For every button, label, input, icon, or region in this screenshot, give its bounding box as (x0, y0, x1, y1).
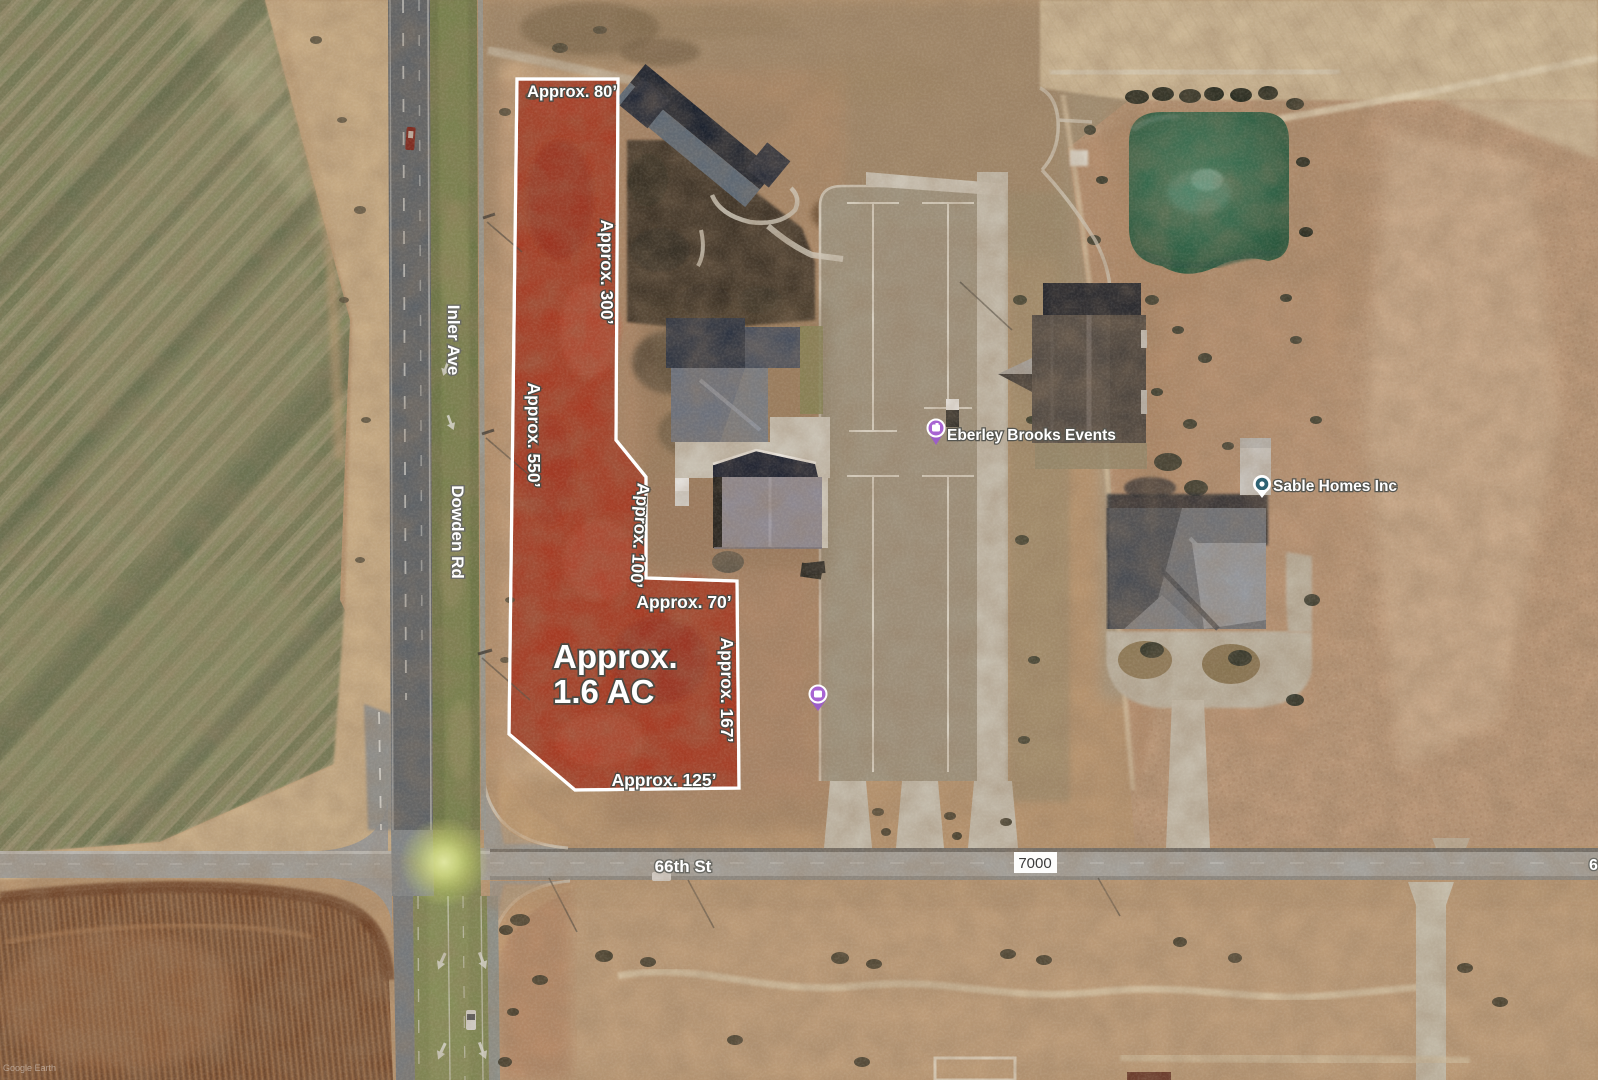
svg-text:Inler Ave: Inler Ave (444, 305, 463, 376)
svg-text:Approx. 125’: Approx. 125’ (611, 770, 716, 790)
svg-text:66th St: 66th St (655, 857, 712, 876)
svg-text:Sable Homes Inc: Sable Homes Inc (1273, 478, 1397, 495)
svg-text:Dowden Rd: Dowden Rd (448, 485, 467, 579)
svg-text:1.6 AC: 1.6 AC (553, 673, 654, 710)
svg-text:Eberley Brooks Events: Eberley Brooks Events (947, 427, 1116, 444)
svg-text:Approx. 550’: Approx. 550’ (524, 382, 544, 487)
svg-text:Google Earth: Google Earth (3, 1063, 56, 1073)
svg-text:7000: 7000 (1018, 855, 1051, 872)
svg-text:Approx. 167’: Approx. 167’ (717, 637, 737, 742)
svg-text:Approx. 70’: Approx. 70’ (636, 592, 731, 612)
svg-text:Approx. 80’: Approx. 80’ (527, 83, 617, 101)
svg-text:Approx. 300’: Approx. 300’ (597, 219, 617, 324)
svg-text:66: 66 (1589, 857, 1598, 874)
svg-text:Approx.: Approx. (553, 638, 678, 675)
